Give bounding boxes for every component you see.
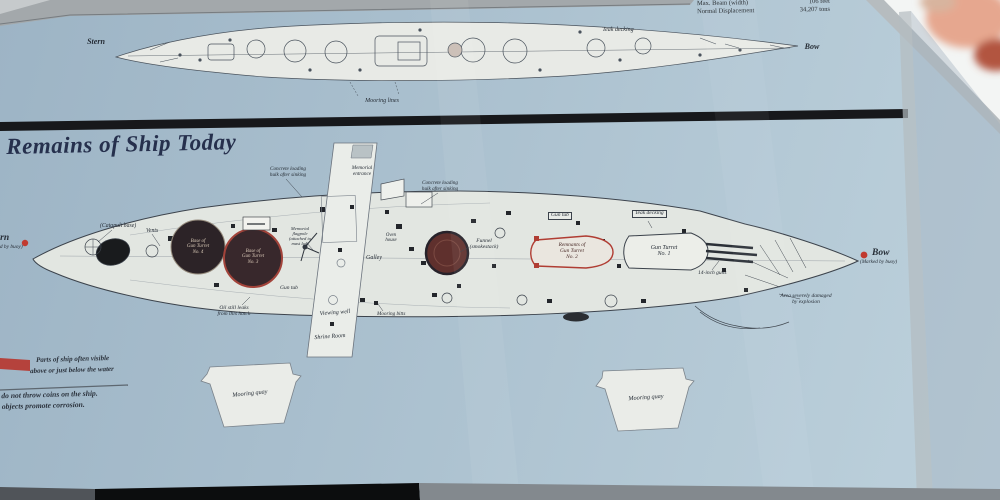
label-gun-tub-right: Gun tub <box>548 212 572 220</box>
label-memorial-entrance: Memorial entrance <box>352 166 372 177</box>
label-stern-top: Stern <box>87 38 105 47</box>
label-catapult-base: (Catapult base) <box>100 223 136 229</box>
label-layer: SternBowMooring linesTeak deckingStern(M… <box>0 0 1000 500</box>
label-teak-decking-top: Teak decking <box>602 27 633 33</box>
label-flagpole: Memorial flagpole (attached to mast leg) <box>289 227 311 247</box>
label-vents: Vents <box>146 228 158 234</box>
label-stern-buoy: (Marked by buoy) <box>0 245 23 251</box>
label-bow-top: Bow <box>805 43 820 52</box>
label-stern-wreck: Stern <box>0 233 9 243</box>
label-shrine-room: Shrine Room <box>314 333 346 342</box>
label-quay-left: Mooring quay <box>232 389 268 399</box>
label-turret4: Base of Gun Turret No. 4 <box>187 239 209 255</box>
label-turret2: Remnants of Gun Turret No. 2 <box>559 243 586 260</box>
label-oven-house: Oven house <box>385 233 396 243</box>
photo-of-ship-information-sign: Max. Beam (width) 106 feet Normal Displa… <box>0 0 1000 500</box>
label-mooring-bitts: Mooring bitts <box>377 312 405 318</box>
label-hulk-right: Concrete loading hulk after sinking <box>422 181 458 192</box>
label-turret1: Gun Turret No. 1 <box>651 245 678 258</box>
label-funnel: Funnel (smokestack) <box>470 239 499 251</box>
label-gun-tub-left: Gun tub <box>280 286 298 292</box>
label-14-inch-guns: 14-inch guns <box>698 271 727 277</box>
label-teak-decking-wreck: Teak decking <box>632 210 667 218</box>
label-hulk-left: Concrete loading hulk after sinking <box>270 167 306 178</box>
label-quay-right: Mooring quay <box>628 394 664 403</box>
label-viewing-well: Viewing well <box>319 309 350 318</box>
label-galley: Galley <box>366 255 382 261</box>
label-bow-buoy: (Marked by buoy) <box>860 260 897 266</box>
label-turret3: Base of Gun Turret No. 3 <box>242 249 264 265</box>
label-mooring-lines: Mooring lines <box>365 98 399 104</box>
label-damage: Area severely damaged by explosion <box>780 294 831 306</box>
label-bow-wreck: Bow <box>872 248 889 258</box>
label-oil-leak: Oil still leaks from this hatch <box>217 306 250 318</box>
